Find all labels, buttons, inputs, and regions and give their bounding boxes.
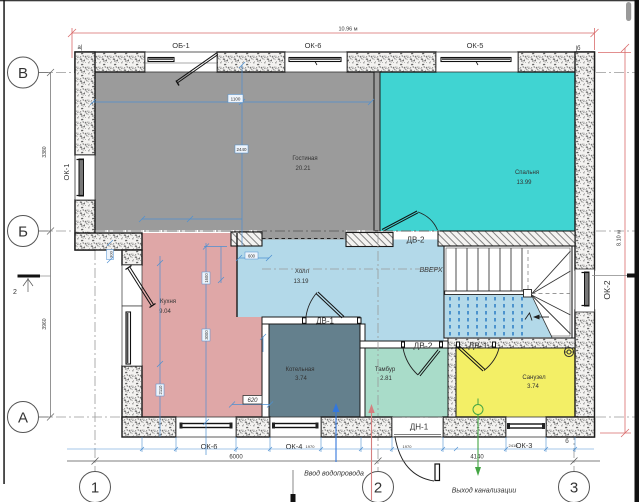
svg-text:Санузел: Санузел	[522, 375, 546, 381]
svg-text:2: 2	[13, 289, 17, 296]
svg-text:ОБ-1: ОБ-1	[172, 41, 189, 50]
svg-text:620: 620	[247, 398, 258, 404]
svg-text:13.99: 13.99	[516, 180, 532, 186]
svg-text:4140: 4140	[470, 455, 484, 461]
svg-text:1600: 1600	[204, 273, 209, 283]
svg-text:Кухня: Кухня	[160, 299, 176, 305]
svg-text:Б: Б	[18, 224, 28, 241]
svg-text:300: 300	[109, 250, 114, 257]
svg-text:ДВ-1: ДВ-1	[469, 341, 488, 351]
svg-text:3000: 3000	[204, 330, 209, 340]
svg-text:2: 2	[374, 480, 382, 497]
svg-text:ДВ-2: ДВ-2	[407, 236, 425, 245]
svg-text:В: В	[18, 65, 28, 82]
svg-text:1970: 1970	[403, 444, 413, 449]
svg-text:ДВ-1: ДВ-1	[316, 317, 334, 326]
svg-text:3960: 3960	[42, 318, 48, 329]
svg-text:ОК-1: ОК-1	[62, 164, 71, 181]
svg-text:ОК-6: ОК-6	[305, 41, 322, 50]
svg-text:1970: 1970	[306, 444, 316, 449]
svg-text:а|: а|	[78, 45, 83, 51]
svg-text:3: 3	[570, 480, 578, 497]
svg-text:Выход канализации: Выход канализации	[452, 487, 517, 495]
svg-text:ДВ-2: ДВ-2	[414, 341, 433, 351]
svg-text:ОК-5: ОК-5	[467, 41, 484, 50]
svg-text:600: 600	[248, 254, 256, 259]
svg-text:20.21: 20.21	[295, 166, 311, 172]
svg-text:8.10 м: 8.10 м	[617, 230, 623, 246]
svg-text:|б: |б	[576, 46, 582, 52]
svg-text:ВВЕРХ: ВВЕРХ	[419, 267, 442, 274]
svg-text:9.04: 9.04	[159, 309, 171, 315]
svg-text:А: А	[18, 410, 28, 427]
svg-text:3.74: 3.74	[527, 384, 539, 390]
svg-text:2440: 2440	[236, 147, 247, 152]
svg-text:б: б	[565, 439, 569, 445]
svg-text:Холл: Холл	[295, 269, 310, 275]
svg-text:Гостиная: Гостиная	[292, 156, 317, 162]
svg-text:ОК-4: ОК-4	[286, 442, 303, 451]
svg-text:2410: 2410	[509, 443, 519, 448]
svg-text:ДН-1: ДН-1	[410, 423, 429, 432]
svg-text:ОК-6: ОК-6	[201, 442, 218, 451]
svg-text:Котельная: Котельная	[285, 367, 314, 373]
svg-text:3380: 3380	[42, 146, 48, 157]
svg-text:Спальня: Спальня	[515, 170, 539, 176]
svg-text:Ввод водопровода: Ввод водопровода	[304, 470, 364, 478]
svg-text:2110: 2110	[158, 385, 163, 395]
svg-text:1100: 1100	[231, 97, 241, 102]
svg-text:ОК-3: ОК-3	[516, 441, 533, 450]
svg-text:3.74: 3.74	[295, 376, 307, 382]
svg-text:6000: 6000	[229, 455, 243, 461]
svg-text:10.96 м: 10.96 м	[338, 27, 357, 33]
svg-text:1: 1	[91, 480, 99, 497]
svg-text:2.81: 2.81	[380, 376, 392, 382]
svg-text:Тамбур: Тамбур	[375, 367, 396, 373]
svg-text:ОК-2: ОК-2	[602, 280, 612, 299]
svg-text:13.19: 13.19	[293, 279, 309, 285]
